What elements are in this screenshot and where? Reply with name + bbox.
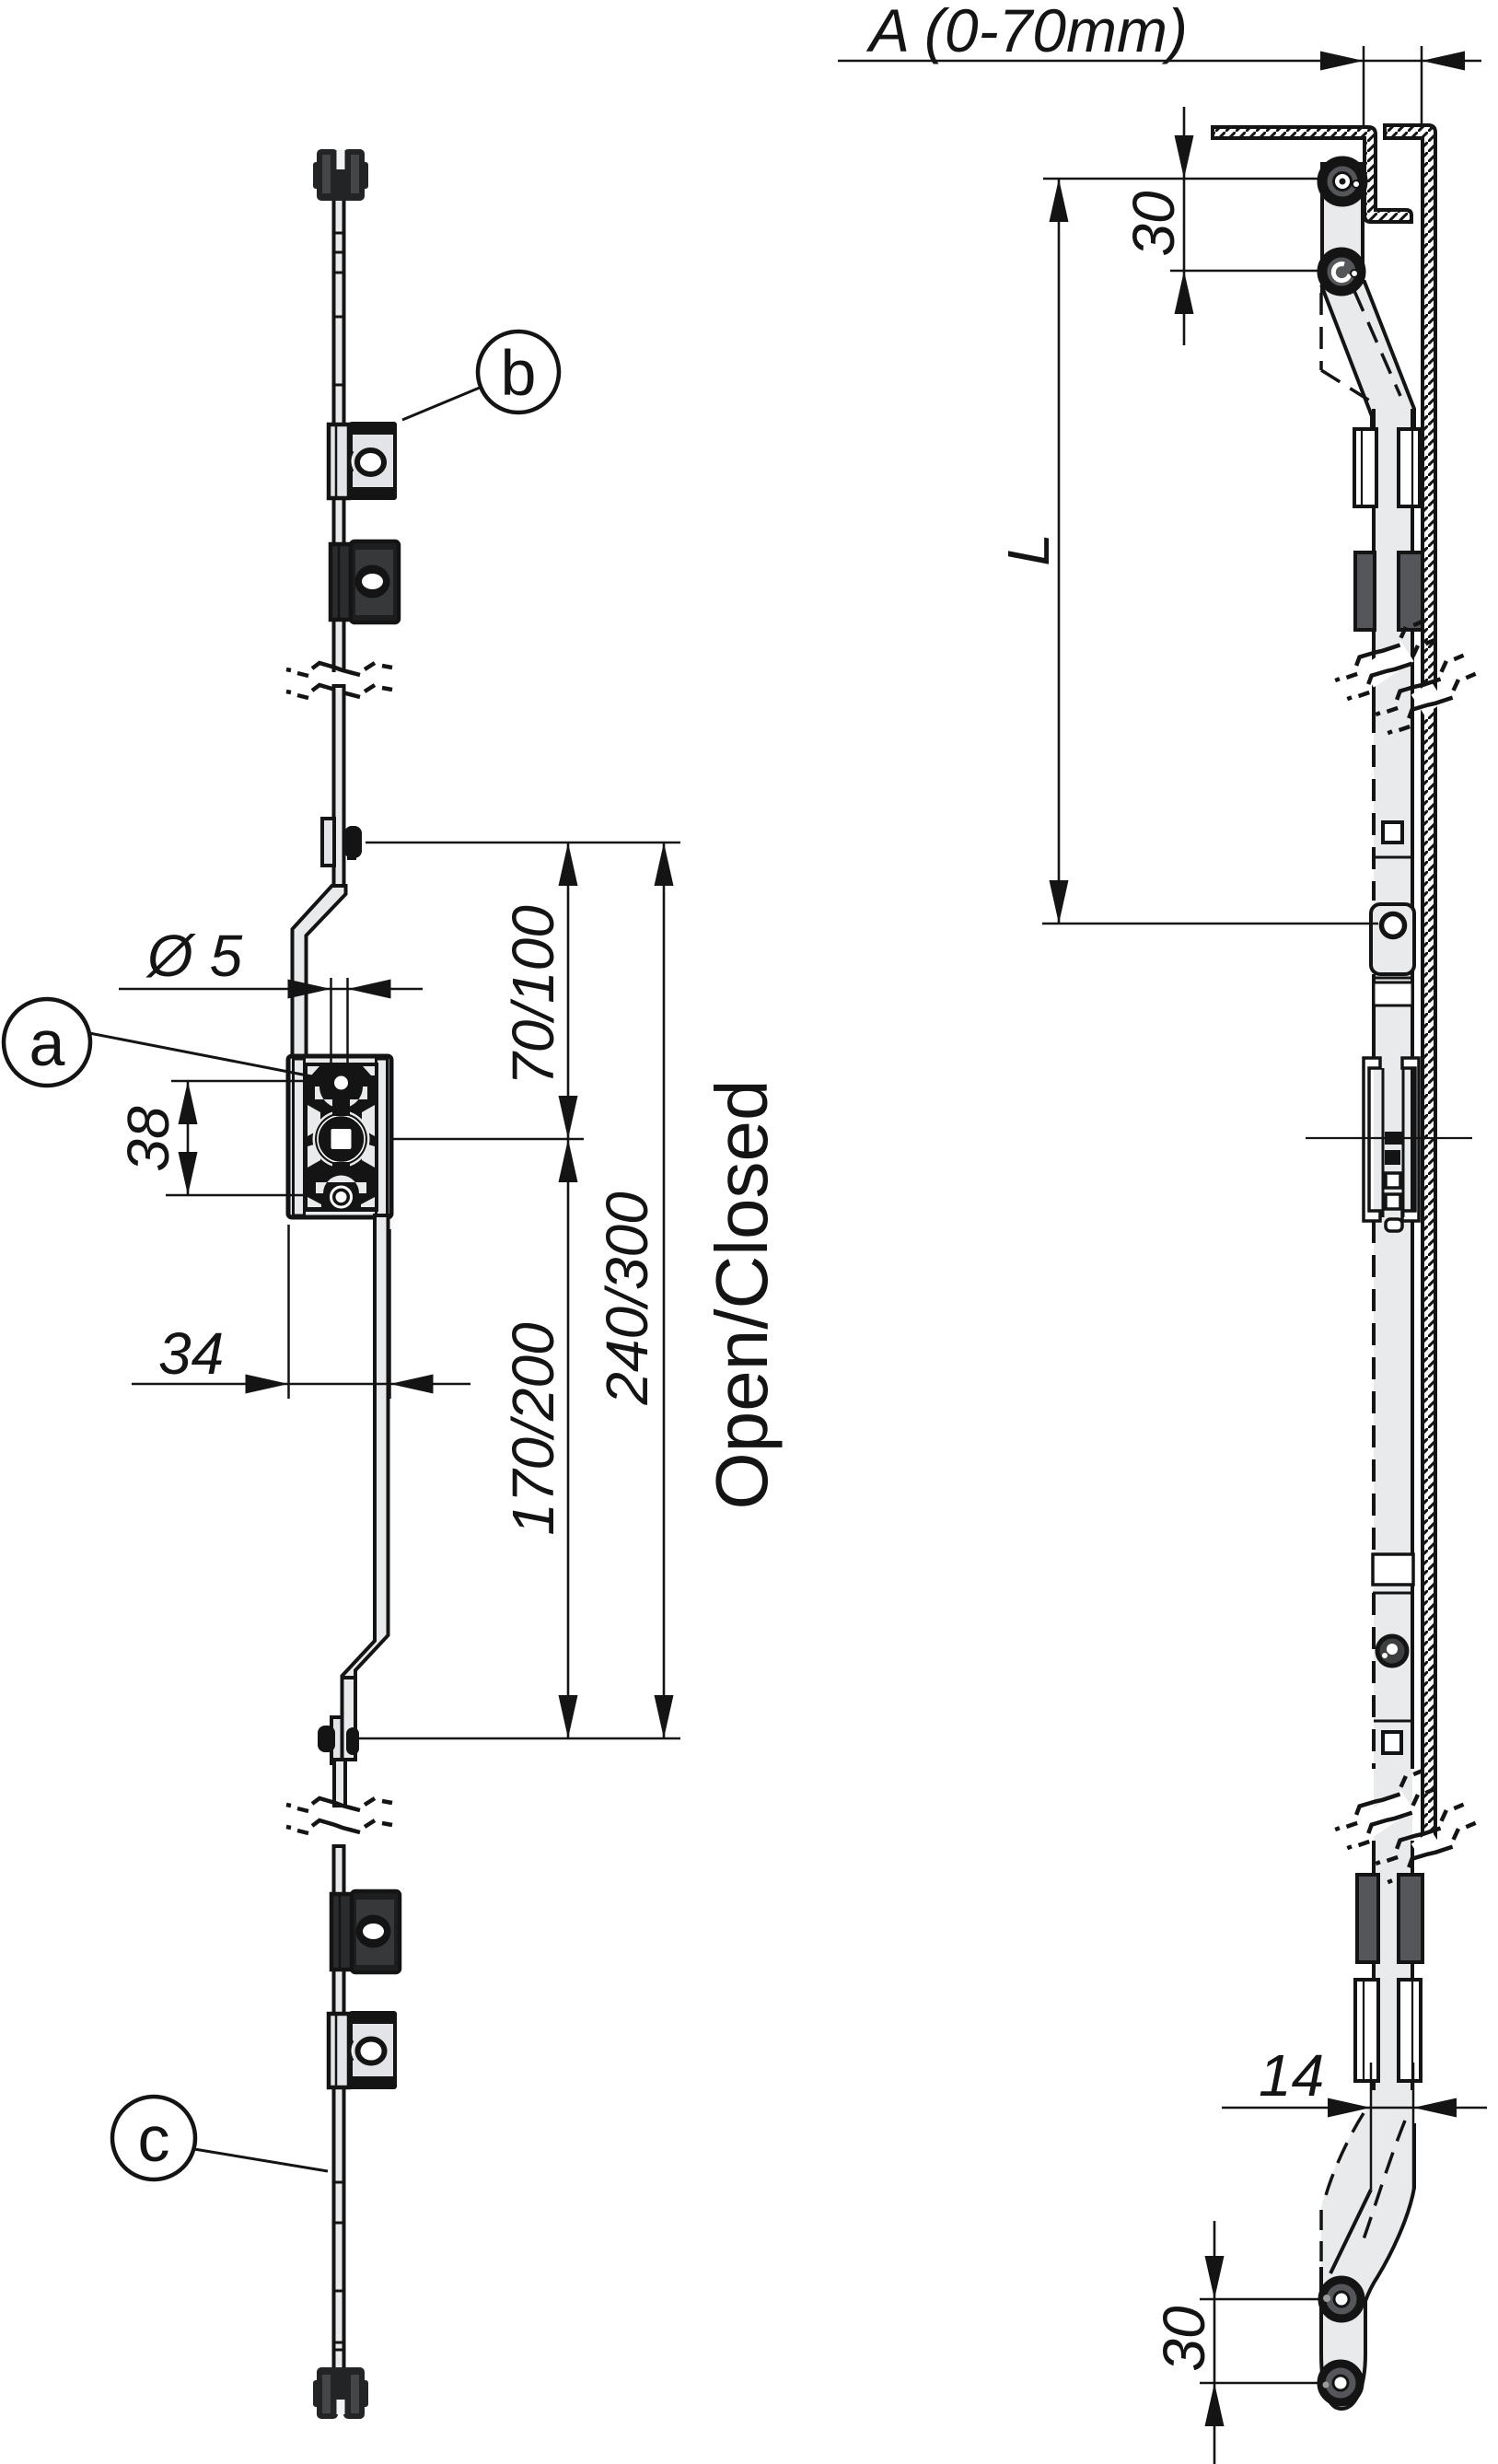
svg-text:34: 34 <box>158 1320 224 1387</box>
svg-text:240/300: 240/300 <box>594 1191 660 1406</box>
svg-text:b: b <box>501 337 537 409</box>
svg-text:c: c <box>138 2103 170 2175</box>
svg-text:a: a <box>29 1007 65 1079</box>
svg-text:170/200: 170/200 <box>500 1322 566 1536</box>
svg-text:Open/Closed: Open/Closed <box>701 1080 783 1510</box>
svg-text:14: 14 <box>1259 2042 1324 2109</box>
svg-text:70/100: 70/100 <box>500 905 566 1086</box>
svg-text:38: 38 <box>115 1106 181 1172</box>
svg-text:A (0-70mm): A (0-70mm) <box>865 0 1188 64</box>
svg-text:L: L <box>995 533 1062 566</box>
svg-text:30: 30 <box>1121 191 1187 257</box>
svg-text:Ø 5: Ø 5 <box>145 923 243 989</box>
svg-text:30: 30 <box>1151 2306 1217 2372</box>
